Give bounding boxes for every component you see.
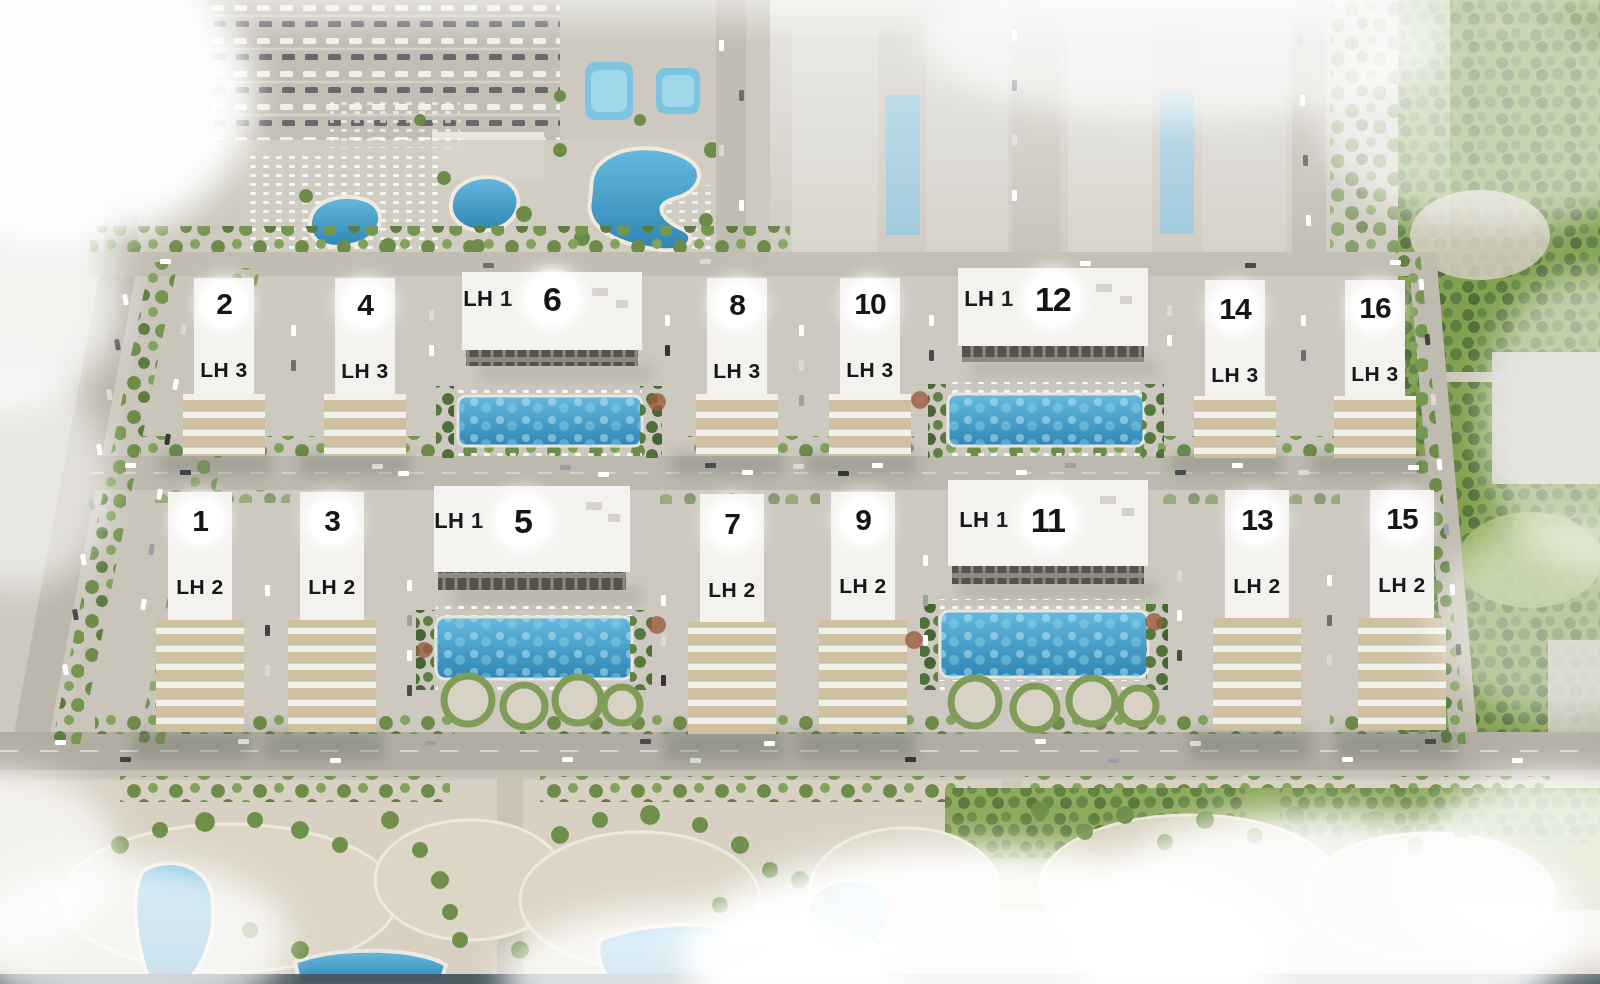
building-13-type-label: LH 2 (1233, 574, 1281, 598)
building-14-marker: 14LH 3 (1211, 286, 1259, 387)
building-6-type-label: LH 1 (463, 286, 513, 312)
building-16-type-label: LH 3 (1351, 362, 1399, 386)
building-9-marker: 9LH 2 (839, 497, 887, 598)
building-11-type-label: LH 1 (959, 507, 1009, 533)
building-16-number-badge: 16 (1352, 285, 1398, 331)
building-15-type-label: LH 2 (1378, 573, 1426, 597)
building-12-type-label: LH 1 (964, 286, 1014, 312)
building-9-number-badge: 9 (840, 497, 886, 543)
building-1-marker: 1LH 2 (176, 498, 224, 599)
building-14-type-label: LH 3 (1211, 363, 1259, 387)
building-3-marker: 3LH 2 (308, 498, 356, 599)
building-14-number-badge: 14 (1212, 286, 1258, 332)
building-4-marker: 4LH 3 (341, 282, 389, 383)
building-10-type-label: LH 3 (846, 358, 894, 382)
building-13-number-badge: 13 (1234, 497, 1280, 543)
building-5-type-label: LH 1 (434, 508, 484, 534)
building-13-marker: 13LH 2 (1233, 497, 1281, 598)
masterplan-scene (0, 0, 1600, 984)
lagoon-pool (451, 177, 518, 231)
lounger-field (330, 96, 460, 148)
building-6-number-badge: 6 (525, 272, 579, 326)
building-5-marker: LH 15 (434, 494, 550, 548)
building-2-type-label: LH 3 (200, 358, 248, 382)
building-3-type-label: LH 2 (308, 575, 356, 599)
building-15-marker: 15LH 2 (1378, 496, 1426, 597)
building-1-number-badge: 1 (177, 498, 223, 544)
building-8-number-badge: 8 (714, 282, 760, 328)
building-4-number-badge: 4 (342, 282, 388, 328)
building-15-number-badge: 15 (1379, 496, 1425, 542)
building-11-marker: LH 111 (959, 493, 1075, 547)
building-7-type-label: LH 2 (708, 578, 756, 602)
building-1-type-label: LH 2 (176, 575, 224, 599)
building-2-marker: 2LH 3 (200, 281, 248, 382)
building-7-number-badge: 7 (709, 501, 755, 547)
building-11-number-badge: 11 (1021, 493, 1075, 547)
building-4-type-label: LH 3 (341, 359, 389, 383)
building-10-marker: 10LH 3 (846, 281, 894, 382)
building-8-type-label: LH 3 (713, 359, 761, 383)
building-16-marker: 16LH 3 (1351, 285, 1399, 386)
building-6-marker: LH 16 (463, 272, 579, 326)
building-10-number-badge: 10 (847, 281, 893, 327)
building-12-marker: LH 112 (964, 272, 1080, 326)
building-5-number-badge: 5 (496, 494, 550, 548)
building-9-type-label: LH 2 (839, 574, 887, 598)
pool-block-12 (948, 382, 1144, 459)
building-7-marker: 7LH 2 (708, 501, 756, 602)
building-8-marker: 8LH 3 (713, 282, 761, 383)
building-12-number-badge: 12 (1026, 272, 1080, 326)
building-2-number-badge: 2 (201, 281, 247, 327)
building-3-number-badge: 3 (309, 498, 355, 544)
masterplan-aerial-view: 1LH 2 2LH 3 3LH 2 4LH 3 LH 15 LH 16 7LH … (0, 0, 1600, 984)
